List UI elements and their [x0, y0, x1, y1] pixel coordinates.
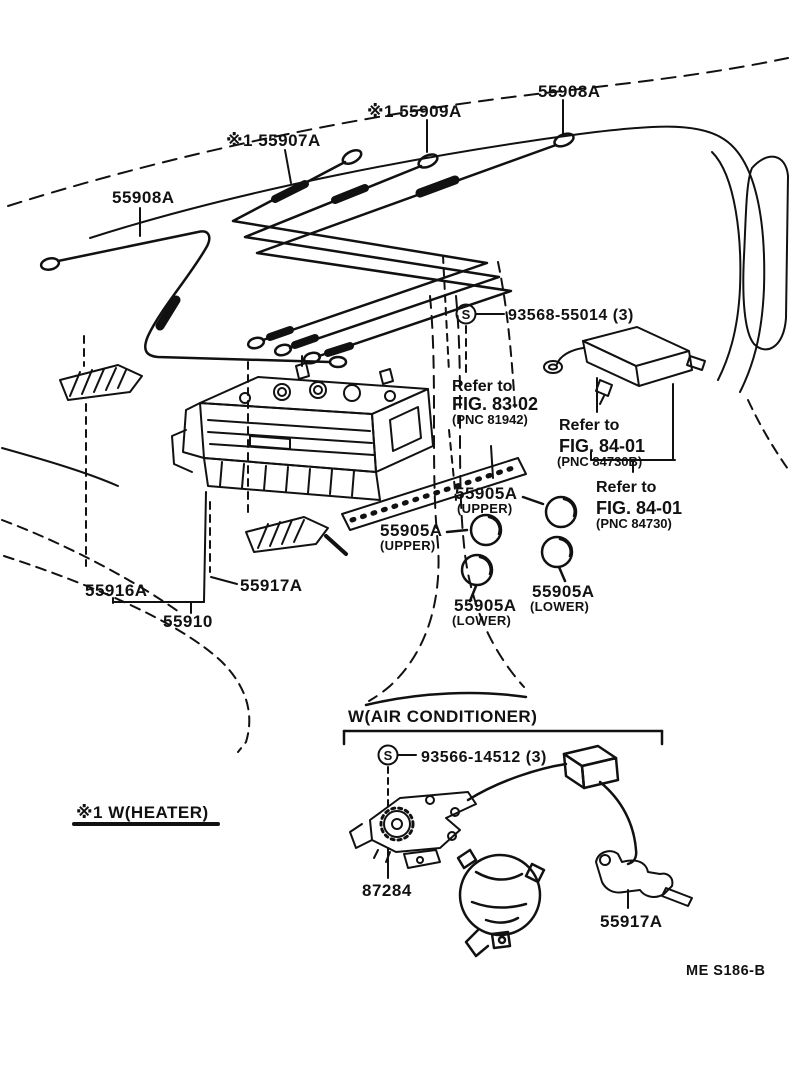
ref1-line2: FIG. 83-02 — [452, 394, 538, 414]
mounting-bracket-55917a — [596, 851, 692, 908]
ref3-line3: (PNC 84730) — [596, 516, 672, 531]
label-55916a: 55916A — [85, 581, 148, 600]
dashboard-outline — [2, 58, 790, 752]
control-cable-55909a — [245, 152, 499, 357]
label-87284: 87284 — [362, 881, 412, 900]
label-55909a: ※1 55909A — [367, 102, 462, 121]
ref2-line1: Refer to — [559, 417, 620, 434]
label-knob-upper-left-note: (UPPER) — [380, 538, 436, 553]
ref1-line3: (PNC 81942) — [452, 412, 528, 427]
label-knob-lower-left-note: (LOWER) — [452, 613, 511, 628]
label-55908a-left: 55908A — [112, 188, 175, 207]
note-heater: ※1 W(HEATER) — [76, 803, 209, 822]
label-55907a: ※1 55907A — [226, 131, 321, 150]
knob-upper-left — [447, 515, 501, 545]
label-55910: 55910 — [163, 612, 213, 631]
parts-diagram-svg: ※1 55907A ※1 55909A 55908A 55908A S 9356… — [0, 0, 792, 1088]
section-title-ac: W(AIR CONDITIONER) — [348, 707, 537, 726]
ref2-line3: (PNC 84730B) — [557, 454, 642, 469]
label-55908a-top: 55908A — [538, 82, 601, 101]
label-screw-top: 93568-55014 (3) — [508, 307, 634, 324]
ref2-line2: FIG. 84-01 — [559, 436, 645, 456]
ref1-line1: Refer to — [452, 378, 513, 395]
label-knob-upper-right-note: (UPPER) — [457, 501, 513, 516]
screw-symbol-top: S — [462, 307, 471, 322]
knob-upper-right — [523, 497, 576, 527]
control-cable-55908a-top — [257, 131, 575, 365]
ref3-line2: FIG. 84-01 — [596, 498, 682, 518]
label-knob-lower-right-note: (LOWER) — [530, 599, 589, 614]
ref3-line1: Refer to — [596, 479, 657, 496]
blower-motor — [458, 850, 544, 956]
console-outline — [369, 256, 524, 701]
servo-actuator-87284 — [350, 792, 476, 878]
parts-diagram-page: ※1 55907A ※1 55909A 55908A 55908A S 9356… — [0, 0, 792, 1088]
label-55917a-top: 55917A — [240, 576, 303, 595]
heater-control-unit — [172, 356, 433, 500]
knob-lower-right — [542, 537, 572, 581]
page-code: ME S186-B — [686, 963, 765, 979]
label-screw-bottom: 93566-14512 (3) — [421, 749, 547, 766]
screw-symbol-bottom: S — [384, 748, 393, 763]
label-55917a-bottom: 55917A — [600, 912, 663, 931]
lever-key-55916a — [60, 336, 142, 566]
leader-lines-top — [140, 100, 563, 236]
